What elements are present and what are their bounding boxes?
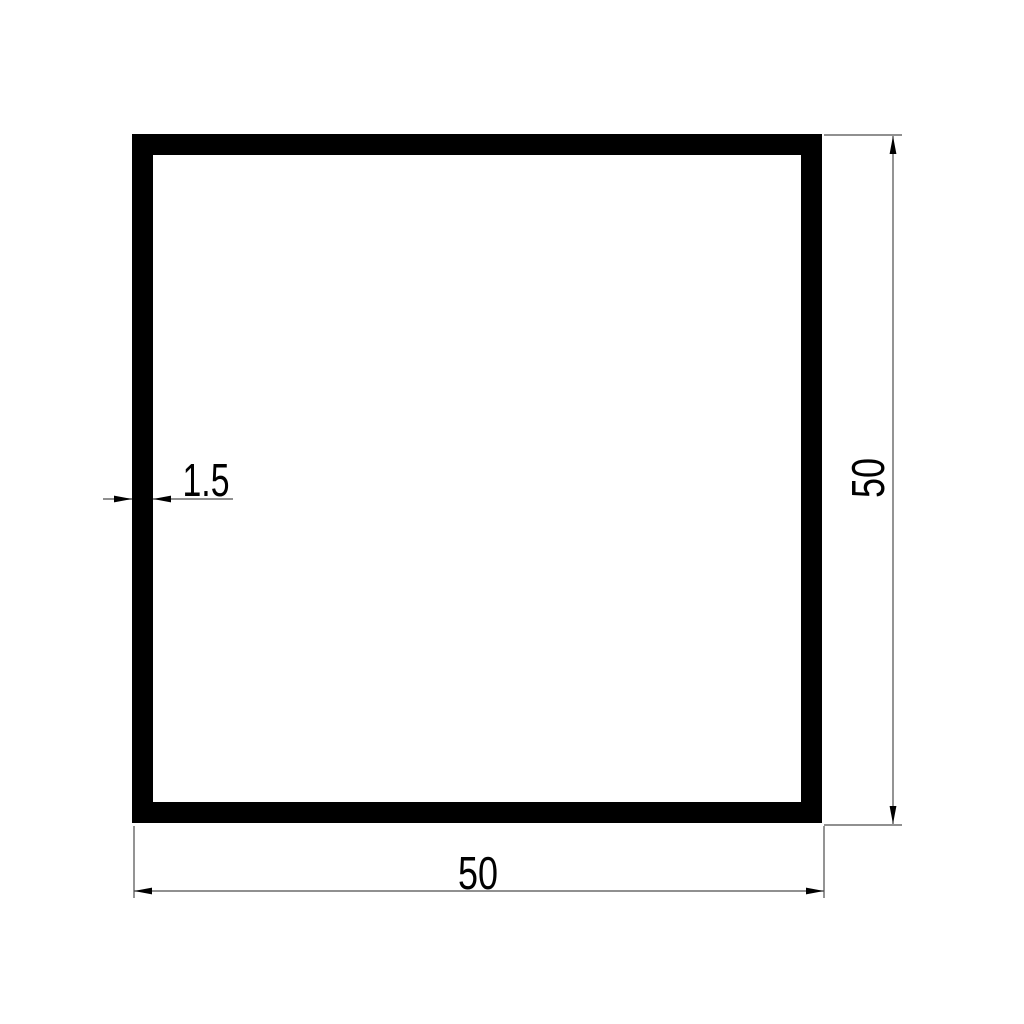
dimension-label-wall: 1.5 — [183, 454, 230, 506]
tube-profile — [132, 134, 822, 823]
arrow-down-icon — [890, 806, 897, 824]
technical-drawing: 50 50 1.5 — [0, 0, 1024, 1024]
dimension-label-height: 50 — [842, 458, 894, 498]
dimension-outer-width: 50 — [134, 826, 824, 899]
tube-inner-cavity — [153, 155, 801, 802]
drawing-canvas: 50 50 1.5 — [0, 0, 1024, 1024]
dimension-outer-height: 50 — [824, 135, 902, 825]
arrow-left-icon — [134, 888, 152, 895]
arrow-right-icon — [806, 888, 824, 895]
arrow-right-at-wall-icon — [114, 496, 132, 503]
arrow-up-icon — [890, 136, 897, 154]
dimension-label-width: 50 — [458, 847, 498, 899]
